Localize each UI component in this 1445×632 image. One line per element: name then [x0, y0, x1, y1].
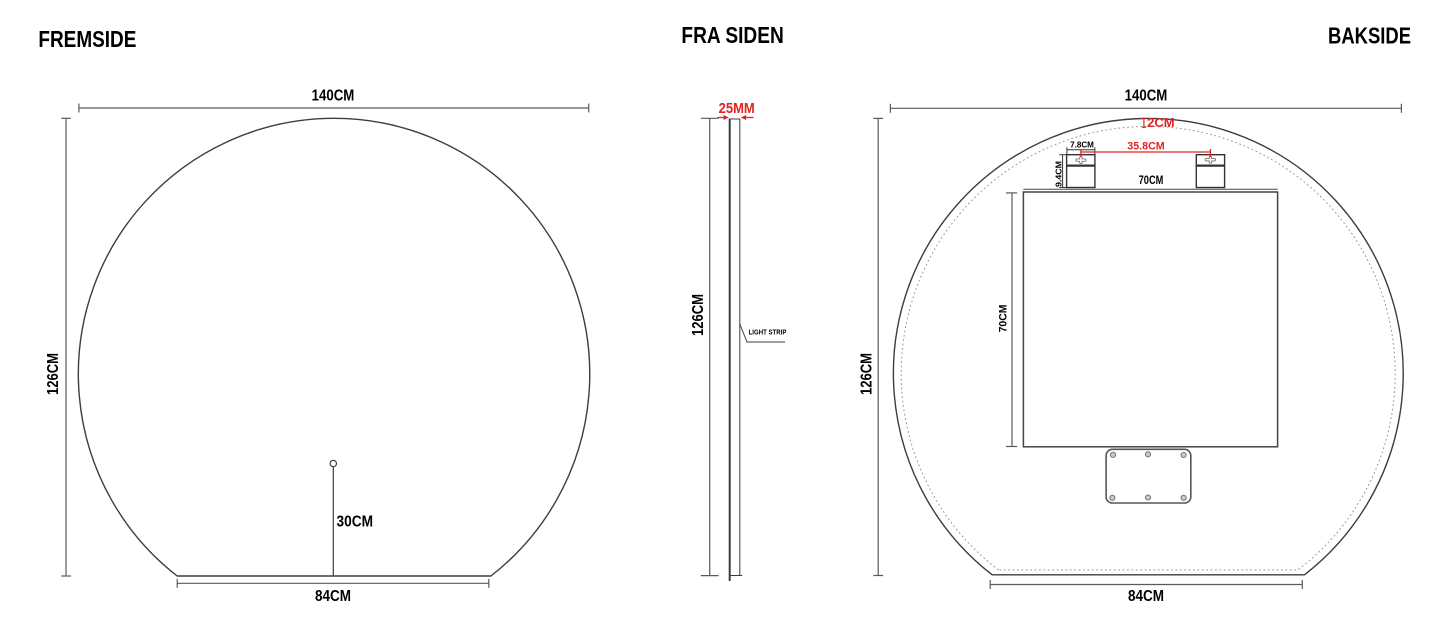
svg-text:FREMSIDE: FREMSIDE — [38, 26, 136, 52]
svg-text:FRA SIDEN: FRA SIDEN — [681, 22, 783, 48]
svg-text:BAKSIDE: BAKSIDE — [1328, 22, 1411, 48]
svg-text:126CM: 126CM — [45, 353, 62, 395]
svg-text:35.8CM: 35.8CM — [1127, 141, 1164, 153]
svg-text:70CM: 70CM — [1139, 173, 1164, 187]
svg-text:126CM: 126CM — [858, 353, 875, 395]
svg-text:7.8CM: 7.8CM — [1070, 140, 1094, 149]
svg-text:2CM: 2CM — [1147, 115, 1174, 130]
svg-text:70CM: 70CM — [997, 305, 1009, 333]
svg-text:126CM: 126CM — [690, 294, 707, 336]
svg-text:9.4CM: 9.4CM — [1054, 161, 1063, 187]
svg-text:140CM: 140CM — [1125, 88, 1168, 105]
svg-text:140CM: 140CM — [312, 88, 355, 105]
svg-text:25MM: 25MM — [719, 100, 755, 117]
svg-text:84CM: 84CM — [1128, 588, 1164, 605]
svg-text:84CM: 84CM — [315, 588, 351, 605]
svg-text:30CM: 30CM — [337, 514, 374, 531]
svg-text:LIGHT STRIP: LIGHT STRIP — [749, 329, 787, 336]
